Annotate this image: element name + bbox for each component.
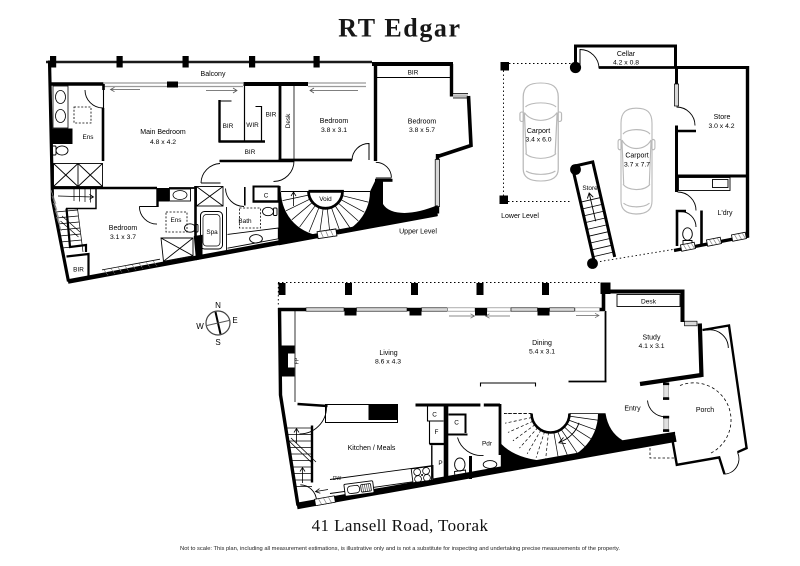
svg-text:3.8 x 3.1: 3.8 x 3.1 [321,127,347,134]
svg-text:P: P [438,460,442,467]
svg-text:Balcony: Balcony [201,71,226,78]
svg-text:4.1 x 3.1: 4.1 x 3.1 [638,343,664,350]
svg-text:Porch: Porch [696,407,714,414]
svg-text:BIR: BIR [266,112,277,119]
svg-text:Upper Level: Upper Level [399,229,437,236]
svg-text:F: F [435,429,439,436]
svg-text:Study: Study [643,335,661,342]
svg-text:S: S [215,338,220,347]
svg-text:Void: Void [319,196,332,203]
svg-text:Pdr: Pdr [482,441,493,448]
svg-text:Bedroom: Bedroom [320,118,349,125]
svg-text:Bedroom: Bedroom [408,119,437,126]
svg-text:Desk: Desk [641,299,657,306]
svg-text:Bath: Bath [238,218,252,225]
svg-text:BIR: BIR [73,267,84,274]
svg-text:41 Lansell Road, Toorak: 41 Lansell Road, Toorak [312,516,489,535]
svg-text:E: E [232,316,237,325]
svg-text:3.1 x 3.7: 3.1 x 3.7 [110,234,136,241]
svg-text:3.8 x 5.7: 3.8 x 5.7 [409,127,435,134]
svg-text:Ens: Ens [170,217,181,224]
svg-text:Store: Store [582,185,598,192]
svg-text:3.0 x 4.2: 3.0 x 4.2 [708,123,734,130]
svg-text:4.8 x 4.2: 4.8 x 4.2 [150,139,176,146]
svg-text:Main Bedroom: Main Bedroom [140,129,186,136]
svg-text:Kitchen / Meals: Kitchen / Meals [348,445,396,452]
svg-text:Lower Level: Lower Level [501,213,539,220]
svg-text:BIR: BIR [245,149,256,156]
svg-text:W: W [196,322,204,331]
svg-text:N: N [215,301,221,310]
svg-text:DW: DW [333,476,342,482]
svg-text:Store: Store [714,114,731,121]
svg-text:3.7 x 7.7: 3.7 x 7.7 [624,162,650,169]
svg-text:RT Edgar: RT Edgar [338,14,461,43]
svg-text:Ens: Ens [82,134,93,141]
svg-text:Spa: Spa [206,229,218,236]
svg-text:Bedroom: Bedroom [109,225,138,232]
svg-text:BIR: BIR [408,70,419,77]
svg-text:Not to scale: This plan, inclu: Not to scale: This plan, including all m… [180,546,620,552]
svg-text:4.2 x 0.8: 4.2 x 0.8 [613,60,639,67]
svg-text:Living: Living [379,350,397,357]
svg-text:C: C [432,412,437,419]
svg-text:Dining: Dining [532,340,552,347]
svg-text:Desk: Desk [285,113,292,128]
svg-text:L'dry: L'dry [718,210,733,217]
svg-text:C: C [454,420,459,427]
svg-text:3.4 x 6.0: 3.4 x 6.0 [525,137,551,144]
svg-text:8.6 x 4.3: 8.6 x 4.3 [375,359,401,366]
svg-text:WIR: WIR [246,122,259,129]
svg-text:C: C [264,193,269,200]
svg-text:BIR: BIR [223,123,234,130]
svg-text:FP: FP [295,357,301,364]
svg-text:Entry: Entry [624,406,641,413]
svg-text:5.4 x 3.1: 5.4 x 3.1 [529,349,555,356]
svg-text:Carport: Carport [527,128,550,135]
svg-text:Cellar: Cellar [617,51,636,58]
svg-text:Carport: Carport [625,153,648,160]
